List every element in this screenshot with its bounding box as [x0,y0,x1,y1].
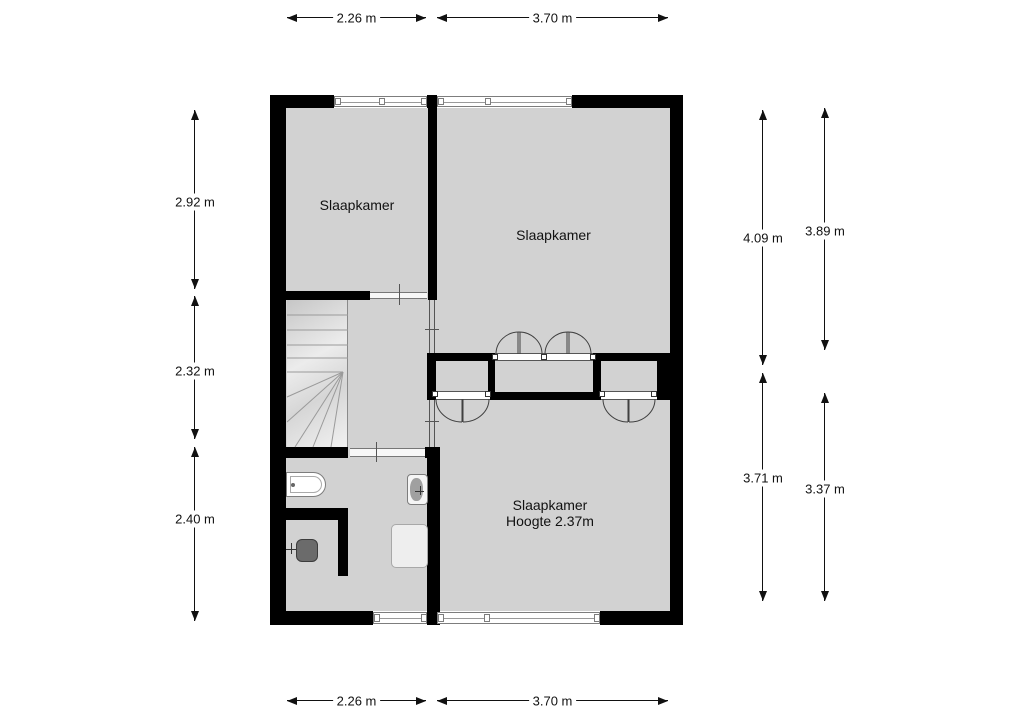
wall-wc-nook [338,520,348,576]
door-hinge [590,354,596,360]
window-mullion [374,614,380,622]
closet-middle-doors-icon [495,330,593,354]
washbasin-tap-icon [415,486,424,495]
room-label-bedroom-3: Slaapkamer Hoogte 2.37m [433,497,667,529]
toilet-tap-icon [286,543,296,554]
window-bottom-right [437,612,600,624]
bath-icon [286,472,326,497]
dim-label: 2.26 m [333,693,381,710]
door-hinge [541,354,547,360]
dim-label: 3.89 m [801,223,849,240]
bath-tap [291,483,295,487]
dim-top-left: 2.26 m [287,17,426,18]
wall-closet-band [427,353,495,361]
wall-bedroom-divider [428,108,437,300]
wall-bathroom-east [427,458,440,611]
partition-tick [425,329,439,330]
window-mullion [335,98,341,105]
window-mullion [566,98,572,105]
dim-right-outer-1: 3.89 m [824,108,825,350]
wall-wc-nook [286,508,348,520]
dim-label: 2.26 m [333,10,381,27]
window-mullion [485,98,491,105]
wall-bottom [270,611,373,625]
door-bathroom [350,448,425,457]
window-frame-line [439,618,598,619]
window-bottom-left [373,612,427,624]
dim-right-inner-1: 4.09 m [762,110,763,365]
shower-icon [391,524,428,568]
wall-right [670,95,683,625]
window-mullion [484,614,490,622]
dim-bottom-left: 2.26 m [287,700,426,701]
window-top-right [437,96,572,107]
dim-label: 3.70 m [529,693,577,710]
door-hinge [599,391,605,397]
dim-left-2: 2.32 m [194,296,195,439]
room-label-bedroom-2: Slaapkamer [437,227,670,243]
door-hinge [432,391,438,397]
closet-left-doors-icon [434,399,491,423]
wall-closet-band [601,353,657,361]
door-bedroom1-tick [399,284,400,305]
wall-left [270,95,286,625]
window-frame-line [375,618,425,619]
stairs-icon [287,300,348,447]
wall-bedroom1-south [286,291,370,300]
wall-closet-band [488,361,495,392]
wall-closet-band [427,361,436,392]
window-frame-line [439,102,570,103]
wall-closet-band [657,353,670,400]
door-hinge [651,391,657,397]
wall-closet-band [490,392,601,400]
dim-right-outer-2: 3.37 m [824,393,825,601]
window-top-left [334,96,427,107]
room-label-bedroom-1: Slaapkamer [286,197,428,213]
dim-right-inner-2: 3.71 m [762,373,763,601]
wall-bottom [600,611,683,625]
dim-label: 2.40 m [171,511,219,528]
window-mullion [421,98,427,105]
window-mullion [594,614,600,622]
dim-label: 3.70 m [529,10,577,27]
dim-bottom-right: 3.70 m [437,700,668,701]
wall-bathroom-north [286,447,348,458]
dim-top-right: 3.70 m [437,17,668,18]
toilet-icon [296,539,318,562]
dim-label: 3.37 m [801,481,849,498]
window-mullion [421,614,427,622]
room-height-note: Hoogte 2.37m [433,513,667,529]
door-bathroom-tick [376,442,377,462]
wall-top [270,95,334,108]
closet-right-doors-icon [601,399,657,423]
wall-top [572,95,683,108]
dim-label: 2.32 m [171,363,219,380]
dim-label: 4.09 m [739,230,787,247]
wall-top-pier [427,95,437,108]
floor-plan: Slaapkamer Slaapkamer Slaapkamer Hoogte … [0,0,1018,720]
partition-hall-upper [429,300,435,353]
wall-bathroom-north [425,447,440,458]
door-hinge [485,391,491,397]
dim-left-3: 2.40 m [194,447,195,621]
window-mullion [379,98,385,105]
door-hinge [492,354,498,360]
dim-label: 2.92 m [171,194,219,211]
dim-left-1: 2.92 m [194,110,195,289]
window-mullion [438,614,444,622]
window-mullion [438,98,444,105]
dim-label: 3.71 m [739,470,787,487]
